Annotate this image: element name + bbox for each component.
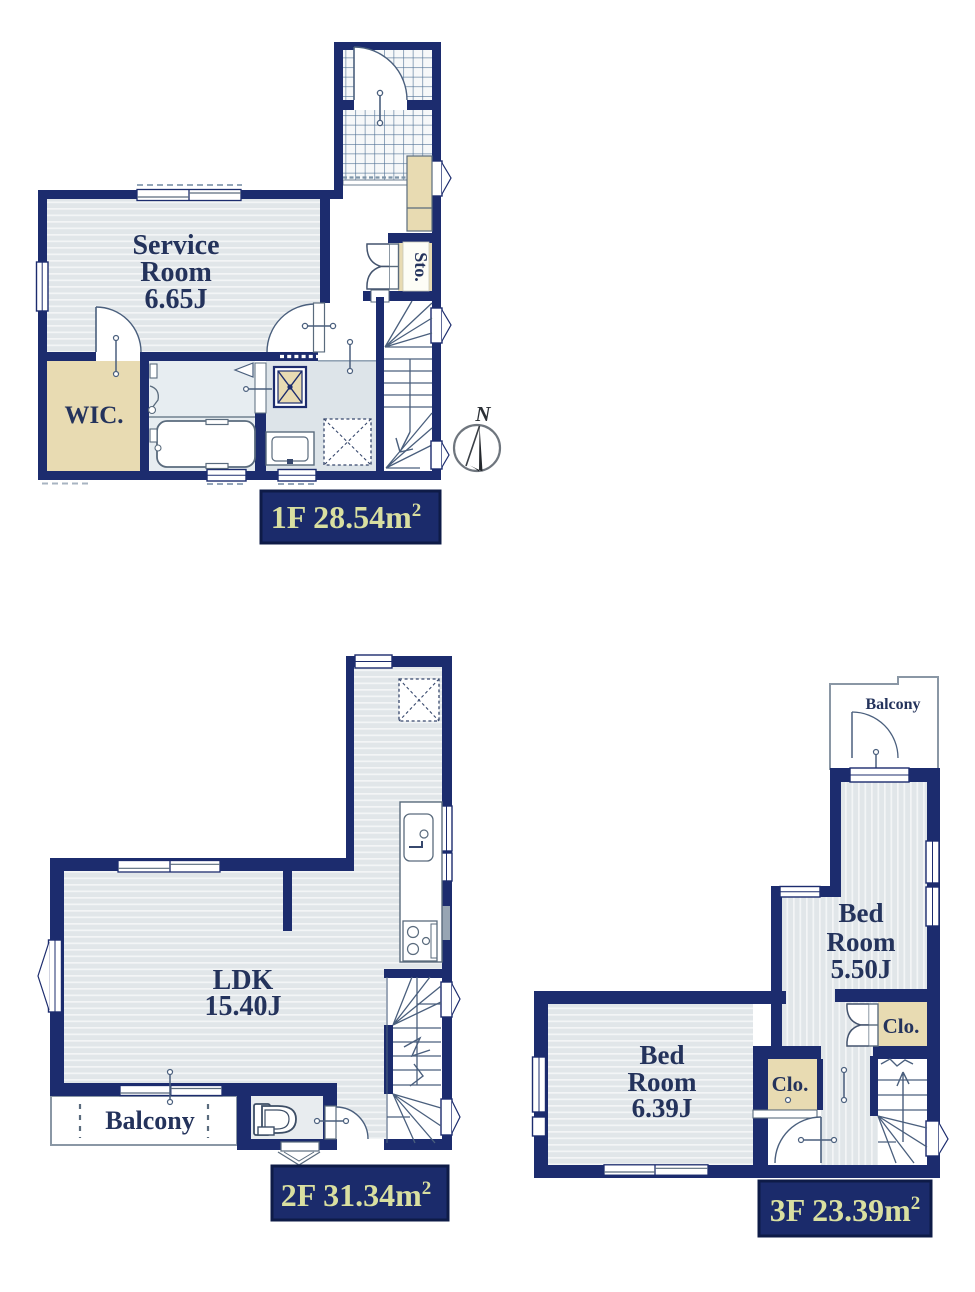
svg-text:Clo.: Clo. [883,1014,920,1038]
svg-text:Clo.: Clo. [772,1072,809,1096]
svg-text:N: N [474,402,491,426]
svg-text:1F 28.54m2: 1F 28.54m2 [271,499,422,535]
svg-text:WIC.: WIC. [64,402,123,429]
svg-text:3F 23.39m2: 3F 23.39m2 [770,1192,921,1228]
svg-text:2F 31.34m2: 2F 31.34m2 [281,1177,432,1213]
svg-text:6.39J: 6.39J [632,1093,693,1123]
svg-text:Sto.: Sto. [411,252,431,282]
svg-text:15.40J: 15.40J [205,991,282,1022]
svg-text:Balcony: Balcony [105,1106,195,1135]
svg-text:Bed: Bed [639,1040,684,1070]
svg-text:Balcony: Balcony [865,696,920,713]
svg-text:5.50J: 5.50J [831,954,892,984]
svg-text:Room: Room [827,927,896,957]
svg-text:Bed: Bed [838,898,883,928]
svg-text:6.65J: 6.65J [145,284,208,315]
